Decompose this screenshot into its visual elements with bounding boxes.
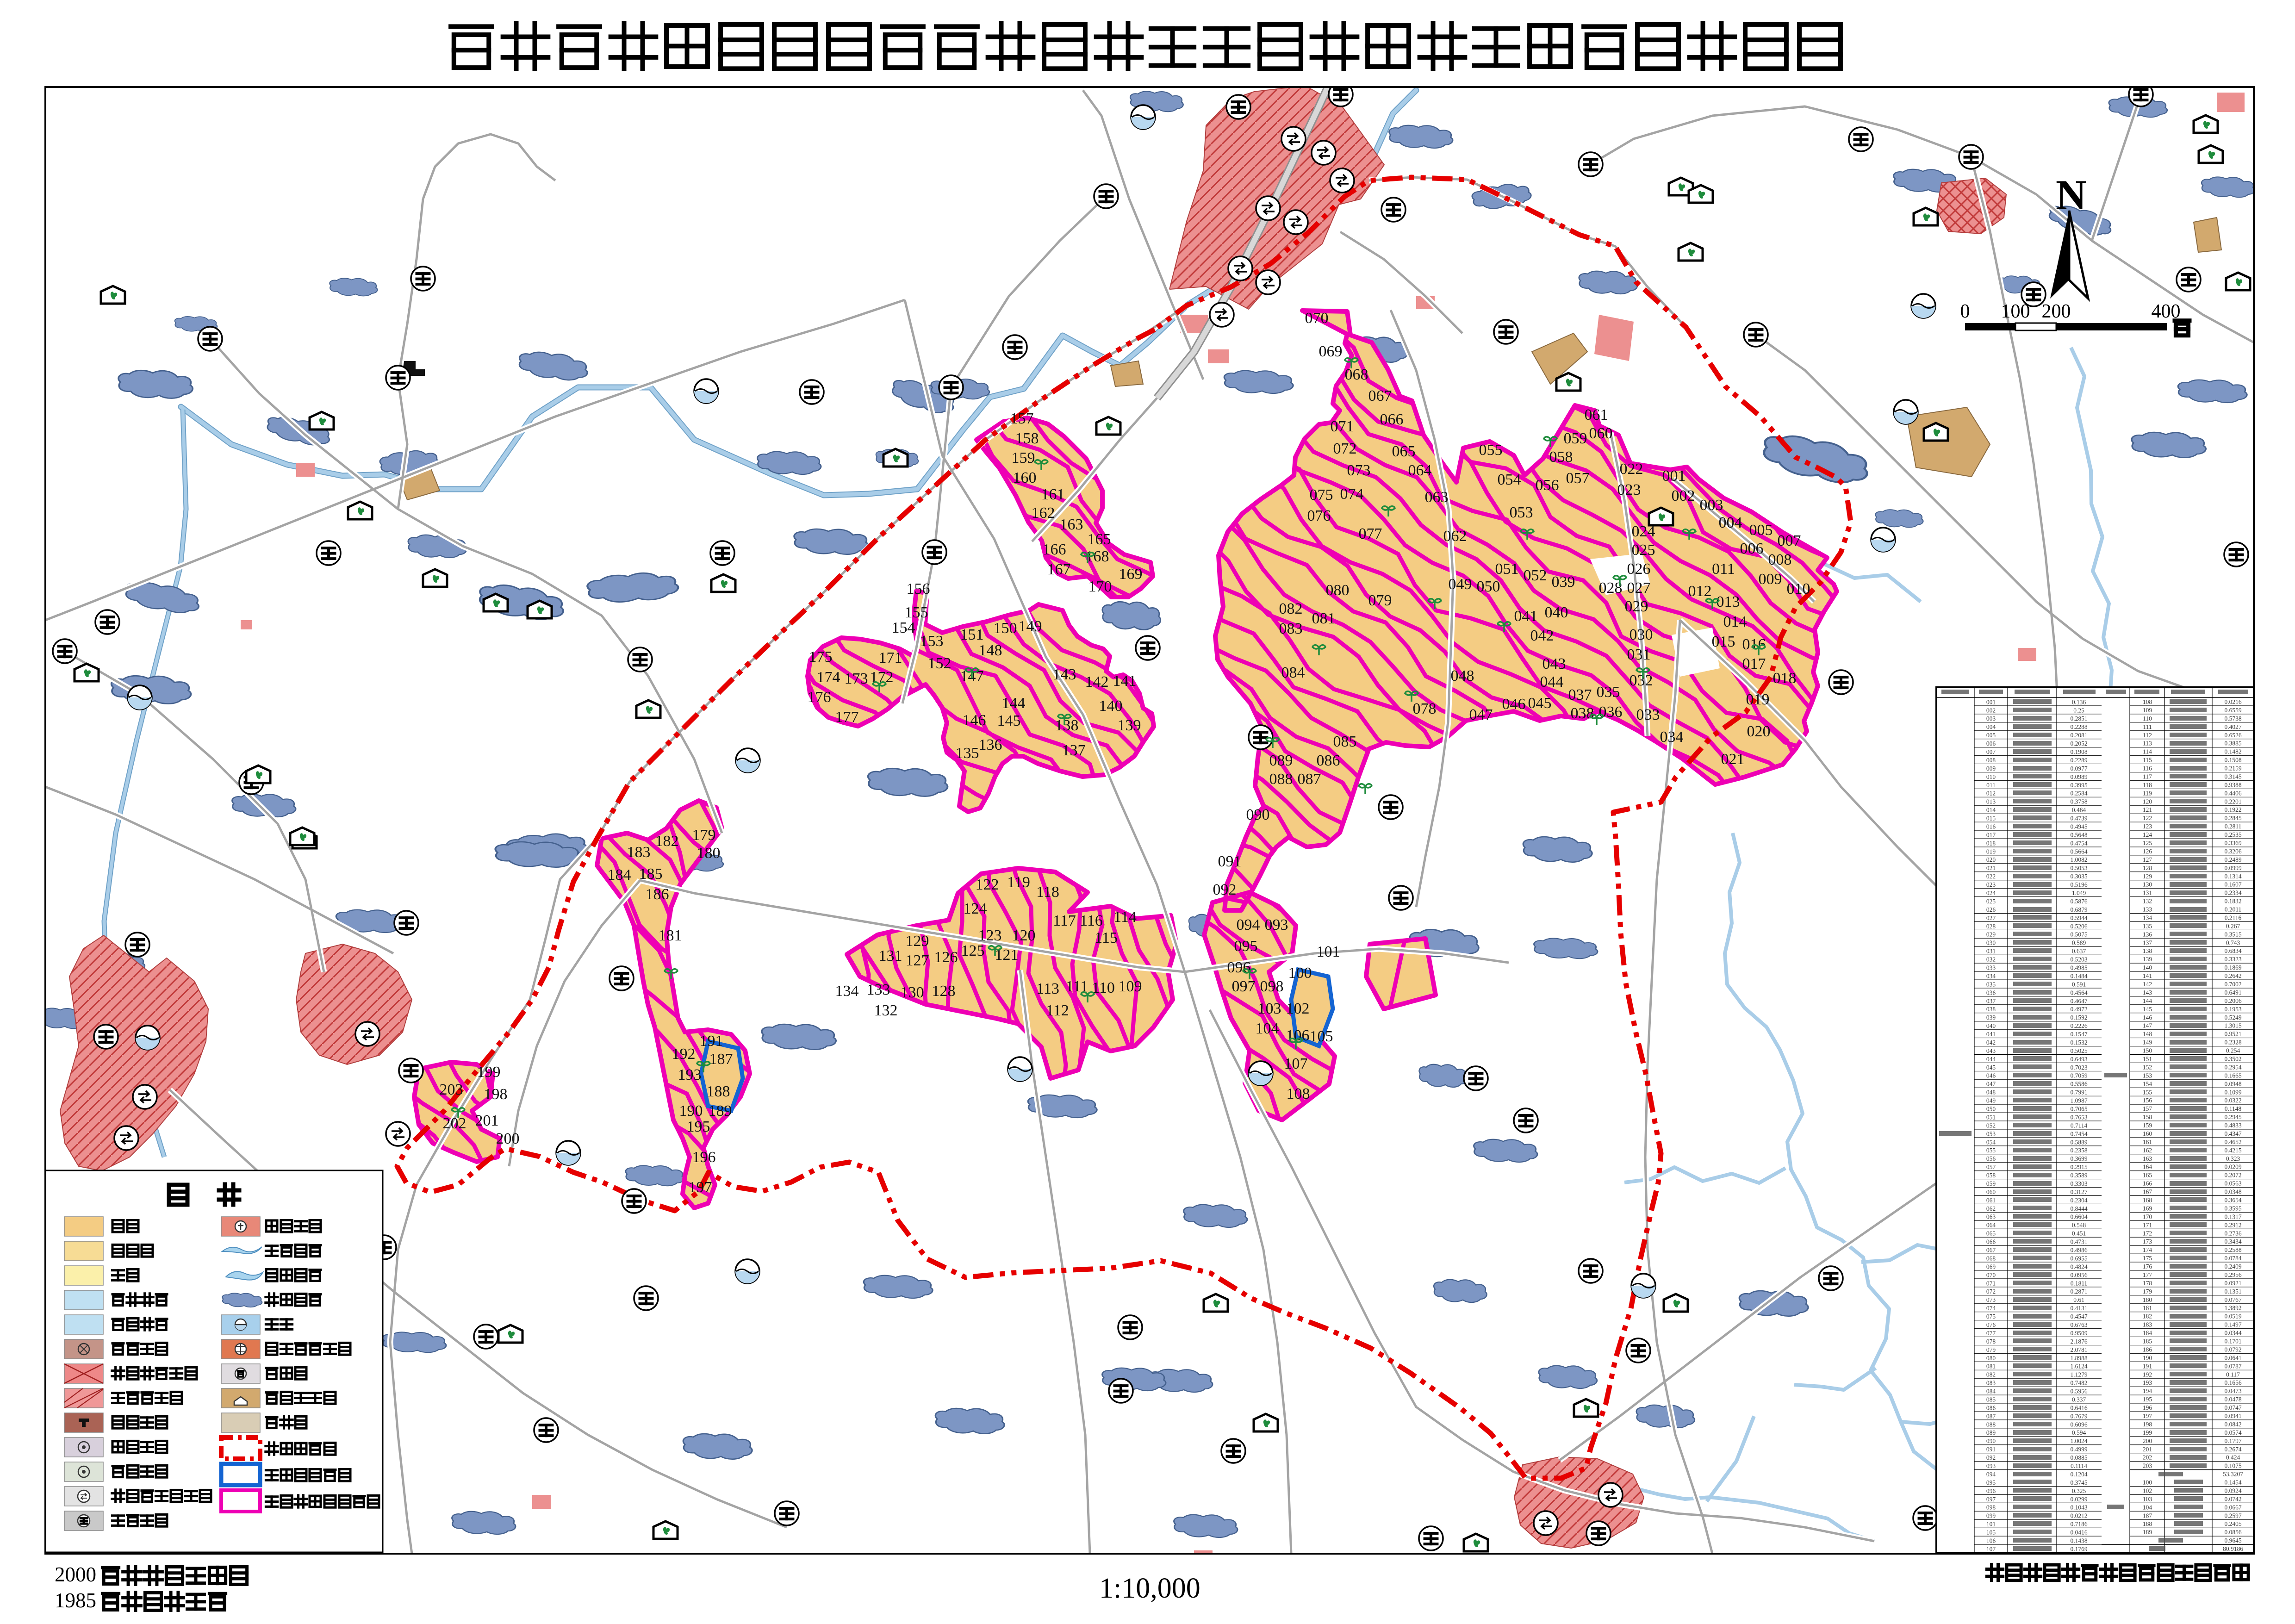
svg-text:040: 040 bbox=[1545, 604, 1568, 621]
svg-text:183: 183 bbox=[2143, 1321, 2152, 1328]
svg-text:156: 156 bbox=[2143, 1097, 2152, 1104]
svg-text:075: 075 bbox=[1986, 1313, 1996, 1320]
svg-text:0.0956: 0.0956 bbox=[2070, 1271, 2087, 1278]
svg-text:097: 097 bbox=[1232, 978, 1256, 995]
svg-text:0.3885: 0.3885 bbox=[2224, 740, 2241, 747]
svg-text:181: 181 bbox=[659, 927, 682, 944]
svg-text:0.5249: 0.5249 bbox=[2224, 1014, 2241, 1021]
svg-text:018: 018 bbox=[1986, 840, 1996, 846]
svg-text:0.0212: 0.0212 bbox=[2070, 1512, 2087, 1519]
svg-text:111: 111 bbox=[2143, 723, 2152, 730]
svg-text:065: 065 bbox=[1392, 443, 1416, 460]
svg-text:0.6559: 0.6559 bbox=[2224, 707, 2241, 714]
svg-text:044: 044 bbox=[1540, 673, 1564, 691]
svg-text:0.6526: 0.6526 bbox=[2224, 732, 2241, 739]
svg-text:0.7023: 0.7023 bbox=[2070, 1064, 2087, 1071]
svg-text:011: 011 bbox=[1712, 560, 1735, 578]
svg-text:143: 143 bbox=[1053, 666, 1076, 683]
svg-text:176: 176 bbox=[808, 689, 831, 706]
svg-text:128: 128 bbox=[2143, 865, 2152, 871]
svg-text:153: 153 bbox=[2143, 1072, 2152, 1079]
svg-text:167: 167 bbox=[2143, 1188, 2152, 1195]
svg-text:116: 116 bbox=[1080, 912, 1103, 929]
svg-text:0.7482: 0.7482 bbox=[2070, 1380, 2087, 1387]
svg-text:146: 146 bbox=[963, 712, 986, 729]
svg-text:109: 109 bbox=[2143, 707, 2152, 714]
svg-text:040: 040 bbox=[1986, 1022, 1996, 1029]
svg-text:0.0977: 0.0977 bbox=[2070, 765, 2087, 772]
svg-text:063: 063 bbox=[1425, 489, 1449, 506]
svg-text:010: 010 bbox=[1986, 773, 1996, 780]
svg-text:125: 125 bbox=[961, 942, 985, 959]
svg-text:046: 046 bbox=[1502, 696, 1526, 713]
svg-text:187: 187 bbox=[2143, 1512, 2152, 1519]
svg-text:0.1811: 0.1811 bbox=[2071, 1280, 2088, 1287]
svg-text:182: 182 bbox=[2143, 1313, 2152, 1320]
svg-text:0.0921: 0.0921 bbox=[2224, 1280, 2241, 1287]
svg-text:034: 034 bbox=[1660, 728, 1684, 746]
svg-text:045: 045 bbox=[1986, 1064, 1996, 1071]
svg-text:064: 064 bbox=[1408, 462, 1432, 479]
svg-text:164: 164 bbox=[2143, 1164, 2152, 1170]
svg-text:0.1922: 0.1922 bbox=[2224, 806, 2241, 813]
svg-text:0.0856: 0.0856 bbox=[2224, 1529, 2241, 1536]
svg-text:033: 033 bbox=[1986, 964, 1996, 971]
svg-text:199: 199 bbox=[2143, 1429, 2152, 1436]
svg-text:157: 157 bbox=[2143, 1105, 2152, 1112]
svg-text:004: 004 bbox=[1719, 514, 1742, 531]
svg-text:122: 122 bbox=[2143, 815, 2152, 821]
svg-text:092: 092 bbox=[1986, 1454, 1996, 1461]
svg-text:166: 166 bbox=[2143, 1180, 2152, 1187]
svg-text:80.9186: 80.9186 bbox=[2223, 1545, 2243, 1552]
svg-text:051: 051 bbox=[1986, 1114, 1996, 1120]
svg-text:064: 064 bbox=[1986, 1222, 1996, 1229]
svg-text:0.4406: 0.4406 bbox=[2224, 790, 2241, 796]
svg-text:136: 136 bbox=[979, 736, 1002, 753]
svg-text:169: 169 bbox=[1119, 566, 1143, 583]
svg-text:0.1547: 0.1547 bbox=[2070, 1031, 2087, 1038]
svg-text:190: 190 bbox=[679, 1102, 703, 1120]
svg-text:134: 134 bbox=[2143, 915, 2152, 921]
svg-text:095: 095 bbox=[1986, 1479, 1996, 1486]
svg-text:127: 127 bbox=[906, 952, 929, 969]
svg-text:0.0322: 0.0322 bbox=[2224, 1097, 2241, 1104]
svg-text:0: 0 bbox=[1960, 301, 1970, 322]
svg-text:0.2915: 0.2915 bbox=[2070, 1164, 2087, 1170]
svg-text:203: 203 bbox=[440, 1081, 463, 1098]
svg-text:055: 055 bbox=[1986, 1147, 1996, 1154]
svg-text:0.2226: 0.2226 bbox=[2070, 1022, 2087, 1029]
svg-text:029: 029 bbox=[1625, 598, 1648, 615]
svg-text:172: 172 bbox=[2143, 1230, 2152, 1237]
svg-text:077: 077 bbox=[1359, 525, 1382, 542]
svg-text:0.1114: 0.1114 bbox=[2071, 1462, 2087, 1469]
svg-text:184: 184 bbox=[2143, 1330, 2152, 1337]
svg-text:175: 175 bbox=[809, 648, 833, 666]
svg-text:0.7991: 0.7991 bbox=[2070, 1089, 2087, 1096]
svg-text:001: 001 bbox=[1662, 467, 1686, 485]
svg-text:011: 011 bbox=[1986, 782, 1996, 789]
svg-text:082: 082 bbox=[1279, 600, 1303, 617]
svg-text:178: 178 bbox=[2143, 1280, 2152, 1287]
svg-text:075: 075 bbox=[1310, 486, 1333, 504]
svg-text:0.2052: 0.2052 bbox=[2070, 740, 2087, 747]
svg-text:004: 004 bbox=[1986, 723, 1996, 730]
svg-text:092: 092 bbox=[1213, 881, 1237, 898]
svg-text:0.3323: 0.3323 bbox=[2224, 956, 2241, 963]
svg-text:0.424: 0.424 bbox=[2226, 1454, 2240, 1461]
svg-text:107: 107 bbox=[1284, 1055, 1308, 1072]
svg-text:1:10,000: 1:10,000 bbox=[1099, 1573, 1200, 1604]
svg-text:0.9521: 0.9521 bbox=[2224, 1031, 2241, 1038]
svg-text:006: 006 bbox=[1986, 740, 1996, 747]
svg-text:050: 050 bbox=[1477, 578, 1500, 595]
svg-text:141: 141 bbox=[2143, 972, 2152, 979]
svg-text:015: 015 bbox=[1986, 815, 1996, 822]
svg-text:165: 165 bbox=[2143, 1172, 2152, 1179]
svg-text:045: 045 bbox=[1528, 695, 1552, 712]
svg-text:139: 139 bbox=[2143, 956, 2152, 963]
svg-text:077: 077 bbox=[1986, 1330, 1996, 1337]
svg-text:060: 060 bbox=[1986, 1188, 1996, 1195]
svg-text:0.1665: 0.1665 bbox=[2224, 1072, 2241, 1079]
svg-text:109: 109 bbox=[1119, 978, 1142, 995]
svg-text:148: 148 bbox=[2143, 1031, 2152, 1038]
svg-text:0.0941: 0.0941 bbox=[2224, 1412, 2241, 1419]
svg-text:100: 100 bbox=[1288, 964, 1312, 982]
svg-text:0.3145: 0.3145 bbox=[2224, 773, 2241, 780]
svg-text:093: 093 bbox=[1986, 1462, 1996, 1469]
svg-text:0.3699: 0.3699 bbox=[2070, 1155, 2087, 1162]
svg-text:0.0641: 0.0641 bbox=[2224, 1354, 2241, 1361]
svg-text:1985: 1985 bbox=[55, 1589, 96, 1612]
svg-text:0.3502: 0.3502 bbox=[2224, 1056, 2241, 1063]
svg-text:026: 026 bbox=[1627, 560, 1651, 578]
svg-text:0.2845: 0.2845 bbox=[2224, 815, 2241, 821]
svg-text:126: 126 bbox=[934, 949, 958, 966]
svg-text:0.0989: 0.0989 bbox=[2070, 773, 2087, 780]
svg-text:023: 023 bbox=[1986, 881, 1996, 888]
svg-text:100: 100 bbox=[2143, 1479, 2152, 1486]
svg-text:044: 044 bbox=[1986, 1056, 1996, 1063]
svg-text:145: 145 bbox=[997, 712, 1021, 729]
svg-text:0.3654: 0.3654 bbox=[2224, 1197, 2241, 1204]
svg-text:020: 020 bbox=[1986, 856, 1996, 863]
svg-text:073: 073 bbox=[1347, 462, 1371, 479]
svg-text:195: 195 bbox=[687, 1118, 710, 1135]
svg-text:041: 041 bbox=[1514, 608, 1538, 625]
svg-text:0.5203: 0.5203 bbox=[2070, 956, 2087, 963]
svg-text:0.4945: 0.4945 bbox=[2070, 823, 2087, 830]
svg-text:186: 186 bbox=[646, 886, 669, 903]
svg-text:177: 177 bbox=[2143, 1271, 2152, 1278]
svg-text:0.7002: 0.7002 bbox=[2224, 981, 2241, 988]
svg-text:160: 160 bbox=[1013, 469, 1037, 486]
svg-text:53.3207: 53.3207 bbox=[2223, 1471, 2243, 1478]
svg-text:201: 201 bbox=[475, 1112, 499, 1129]
svg-text:0.1148: 0.1148 bbox=[2225, 1105, 2242, 1112]
svg-text:0.0667: 0.0667 bbox=[2224, 1504, 2241, 1511]
svg-text:0.1314: 0.1314 bbox=[2224, 873, 2241, 880]
svg-text:194: 194 bbox=[2143, 1388, 2152, 1394]
svg-text:089: 089 bbox=[1986, 1429, 1996, 1436]
svg-text:100: 100 bbox=[2001, 301, 2030, 322]
svg-text:165: 165 bbox=[1088, 531, 1111, 548]
svg-text:120: 120 bbox=[2143, 798, 2152, 805]
svg-text:157: 157 bbox=[1010, 410, 1034, 427]
svg-text:0.1204: 0.1204 bbox=[2070, 1471, 2087, 1478]
svg-text:123: 123 bbox=[2143, 823, 2152, 830]
svg-text:108: 108 bbox=[1287, 1085, 1310, 1102]
svg-text:151: 151 bbox=[2143, 1056, 2152, 1063]
svg-text:154: 154 bbox=[2143, 1080, 2152, 1087]
svg-text:0.2159: 0.2159 bbox=[2224, 765, 2241, 772]
svg-text:192: 192 bbox=[672, 1045, 696, 1063]
svg-text:030: 030 bbox=[1630, 626, 1653, 643]
svg-text:103: 103 bbox=[1258, 1000, 1281, 1017]
svg-text:0.3434: 0.3434 bbox=[2224, 1238, 2241, 1245]
svg-text:0.5025: 0.5025 bbox=[2070, 1047, 2087, 1054]
svg-text:0.7454: 0.7454 bbox=[2070, 1130, 2087, 1137]
svg-text:171: 171 bbox=[2143, 1221, 2152, 1228]
svg-text:090: 090 bbox=[1986, 1437, 1996, 1444]
svg-text:068: 068 bbox=[1345, 366, 1368, 383]
svg-text:053: 053 bbox=[1510, 504, 1533, 521]
svg-text:103: 103 bbox=[2143, 1495, 2152, 1502]
svg-text:038: 038 bbox=[1986, 1006, 1996, 1013]
svg-text:0.2289: 0.2289 bbox=[2070, 757, 2087, 764]
svg-text:0.4564: 0.4564 bbox=[2070, 989, 2087, 996]
svg-text:005: 005 bbox=[1986, 732, 1996, 739]
svg-text:0.1832: 0.1832 bbox=[2224, 898, 2241, 905]
svg-text:202: 202 bbox=[2143, 1454, 2152, 1461]
svg-text:179: 179 bbox=[2143, 1288, 2152, 1295]
svg-text:201: 201 bbox=[2143, 1446, 2152, 1453]
svg-text:0.6604: 0.6604 bbox=[2070, 1213, 2087, 1220]
svg-text:0.9509: 0.9509 bbox=[2070, 1330, 2087, 1337]
svg-text:0.117: 0.117 bbox=[2226, 1371, 2240, 1378]
svg-text:131: 131 bbox=[879, 947, 902, 964]
svg-text:084: 084 bbox=[1986, 1388, 1996, 1395]
svg-text:160: 160 bbox=[2143, 1130, 2152, 1137]
svg-text:173: 173 bbox=[2143, 1238, 2152, 1245]
svg-text:0.1482: 0.1482 bbox=[2224, 748, 2241, 755]
svg-text:0.0344: 0.0344 bbox=[2224, 1330, 2241, 1337]
svg-text:2.1876: 2.1876 bbox=[2070, 1338, 2087, 1345]
svg-text:152: 152 bbox=[928, 655, 952, 672]
svg-text:050: 050 bbox=[1986, 1106, 1996, 1113]
svg-text:0.4986: 0.4986 bbox=[2070, 1247, 2087, 1254]
svg-text:0.9645: 0.9645 bbox=[2224, 1537, 2241, 1544]
svg-text:032: 032 bbox=[1630, 672, 1653, 689]
svg-text:184: 184 bbox=[608, 866, 631, 884]
svg-text:129: 129 bbox=[906, 933, 929, 950]
svg-text:017: 017 bbox=[1986, 831, 1996, 838]
svg-text:129: 129 bbox=[2143, 873, 2152, 880]
svg-text:001: 001 bbox=[1986, 698, 1996, 705]
svg-text:034: 034 bbox=[1986, 972, 1996, 979]
svg-text:088: 088 bbox=[1269, 771, 1293, 788]
svg-text:060: 060 bbox=[1589, 425, 1613, 442]
svg-text:039: 039 bbox=[1986, 1014, 1996, 1021]
svg-text:0.3595: 0.3595 bbox=[2224, 1205, 2241, 1212]
svg-text:0.3369: 0.3369 bbox=[2224, 840, 2241, 846]
svg-text:110: 110 bbox=[1092, 979, 1115, 996]
svg-text:193: 193 bbox=[678, 1066, 702, 1083]
svg-text:048: 048 bbox=[1451, 667, 1474, 684]
svg-text:0.6096: 0.6096 bbox=[2070, 1421, 2087, 1428]
svg-text:104: 104 bbox=[1256, 1020, 1279, 1037]
svg-text:078: 078 bbox=[1413, 700, 1437, 717]
svg-text:0.2945: 0.2945 bbox=[2224, 1114, 2241, 1120]
svg-text:0.1438: 0.1438 bbox=[2070, 1537, 2087, 1544]
svg-text:0.591: 0.591 bbox=[2072, 981, 2086, 988]
svg-text:0.7186: 0.7186 bbox=[2070, 1521, 2087, 1528]
svg-text:071: 071 bbox=[1331, 418, 1354, 435]
svg-text:119: 119 bbox=[1007, 874, 1030, 891]
svg-text:0.0842: 0.0842 bbox=[2224, 1421, 2241, 1428]
svg-text:091: 091 bbox=[1986, 1446, 1996, 1453]
svg-text:189: 189 bbox=[709, 1102, 732, 1120]
svg-text:013: 013 bbox=[1717, 593, 1740, 610]
svg-text:0.7059: 0.7059 bbox=[2070, 1072, 2087, 1079]
svg-text:159: 159 bbox=[2143, 1122, 2152, 1129]
svg-text:042: 042 bbox=[1530, 627, 1554, 644]
svg-text:128: 128 bbox=[932, 983, 956, 1000]
svg-text:0.4131: 0.4131 bbox=[2070, 1305, 2087, 1312]
svg-text:0.4972: 0.4972 bbox=[2070, 1006, 2087, 1013]
svg-text:112: 112 bbox=[1046, 1002, 1069, 1019]
svg-text:193: 193 bbox=[2143, 1379, 2152, 1386]
svg-text:0.2954: 0.2954 bbox=[2224, 1064, 2241, 1070]
svg-text:0.5053: 0.5053 bbox=[2070, 865, 2087, 871]
svg-text:117: 117 bbox=[2143, 773, 2152, 780]
svg-text:068: 068 bbox=[1986, 1255, 1996, 1262]
svg-text:022: 022 bbox=[1620, 460, 1643, 478]
svg-text:083: 083 bbox=[1986, 1380, 1996, 1387]
svg-text:119: 119 bbox=[2143, 790, 2152, 796]
svg-text:057: 057 bbox=[1566, 470, 1590, 487]
svg-text:176: 176 bbox=[2143, 1263, 2152, 1270]
svg-text:203: 203 bbox=[2143, 1462, 2152, 1469]
svg-text:105: 105 bbox=[1310, 1028, 1333, 1045]
svg-text:0.0574: 0.0574 bbox=[2224, 1429, 2241, 1436]
svg-text:0.136: 0.136 bbox=[2072, 698, 2086, 705]
svg-text:200: 200 bbox=[2143, 1437, 2152, 1444]
svg-text:138: 138 bbox=[1055, 717, 1079, 734]
svg-text:200: 200 bbox=[2042, 301, 2071, 322]
svg-text:0.4754: 0.4754 bbox=[2070, 840, 2087, 846]
svg-text:N: N bbox=[2056, 171, 2086, 218]
svg-text:037: 037 bbox=[1568, 686, 1592, 703]
svg-text:197: 197 bbox=[689, 1179, 712, 1196]
svg-text:198: 198 bbox=[2143, 1421, 2152, 1428]
svg-text:0.7114: 0.7114 bbox=[2071, 1122, 2088, 1129]
svg-text:0.2489: 0.2489 bbox=[2224, 856, 2241, 863]
svg-text:014: 014 bbox=[1723, 613, 1747, 630]
svg-text:124: 124 bbox=[964, 900, 987, 917]
svg-text:0.4824: 0.4824 bbox=[2070, 1263, 2087, 1270]
svg-text:031: 031 bbox=[1627, 646, 1651, 663]
svg-text:0.5664: 0.5664 bbox=[2070, 848, 2087, 855]
svg-text:188: 188 bbox=[707, 1083, 730, 1100]
svg-text:0.3206: 0.3206 bbox=[2224, 848, 2241, 855]
svg-text:0.7653: 0.7653 bbox=[2070, 1114, 2087, 1120]
svg-text:154: 154 bbox=[892, 619, 915, 636]
svg-text:0.5738: 0.5738 bbox=[2224, 715, 2241, 722]
svg-text:0.2405: 0.2405 bbox=[2224, 1520, 2241, 1527]
svg-text:0.3303: 0.3303 bbox=[2070, 1180, 2087, 1187]
svg-text:0.2811: 0.2811 bbox=[2225, 823, 2242, 830]
svg-text:025: 025 bbox=[1632, 541, 1655, 559]
svg-text:056: 056 bbox=[1536, 477, 1559, 494]
svg-text:0.254: 0.254 bbox=[2226, 1047, 2240, 1054]
svg-text:142: 142 bbox=[1085, 673, 1109, 691]
svg-text:189: 189 bbox=[2143, 1529, 2152, 1536]
svg-text:032: 032 bbox=[1986, 956, 1996, 963]
svg-text:114: 114 bbox=[1113, 908, 1137, 926]
svg-text:195: 195 bbox=[2143, 1396, 2152, 1403]
svg-text:130: 130 bbox=[901, 984, 924, 1001]
svg-text:0.2358: 0.2358 bbox=[2070, 1147, 2087, 1154]
svg-text:081: 081 bbox=[1986, 1363, 1996, 1370]
svg-text:086: 086 bbox=[1317, 752, 1340, 769]
svg-text:0.6763: 0.6763 bbox=[2070, 1321, 2087, 1328]
svg-text:101: 101 bbox=[1986, 1521, 1996, 1528]
svg-text:0.2851: 0.2851 bbox=[2070, 715, 2087, 722]
svg-text:0.0787: 0.0787 bbox=[2224, 1363, 2241, 1369]
svg-text:008: 008 bbox=[1768, 551, 1792, 568]
svg-text:0.2588: 0.2588 bbox=[2224, 1246, 2241, 1253]
svg-text:028: 028 bbox=[1599, 579, 1623, 597]
svg-text:113: 113 bbox=[2143, 740, 2152, 747]
svg-text:0.1869: 0.1869 bbox=[2224, 964, 2241, 971]
svg-text:0.2871: 0.2871 bbox=[2070, 1288, 2087, 1295]
svg-text:0.7065: 0.7065 bbox=[2070, 1106, 2087, 1113]
svg-text:0.0209: 0.0209 bbox=[2224, 1164, 2241, 1170]
svg-text:182: 182 bbox=[655, 833, 679, 850]
svg-text:0.2642: 0.2642 bbox=[2224, 972, 2241, 979]
svg-text:042: 042 bbox=[1986, 1039, 1996, 1046]
svg-text:0.7679: 0.7679 bbox=[2070, 1412, 2087, 1419]
svg-text:151: 151 bbox=[960, 626, 984, 643]
svg-text:094: 094 bbox=[1986, 1471, 1996, 1478]
svg-text:0.0742: 0.0742 bbox=[2224, 1495, 2241, 1502]
svg-text:018: 018 bbox=[1773, 670, 1797, 687]
svg-text:007: 007 bbox=[1986, 748, 1996, 755]
svg-text:0.25: 0.25 bbox=[2073, 707, 2084, 714]
svg-text:0.0792: 0.0792 bbox=[2224, 1346, 2241, 1353]
svg-text:093: 093 bbox=[1265, 916, 1288, 933]
svg-text:196: 196 bbox=[692, 1149, 716, 1166]
svg-text:122: 122 bbox=[976, 876, 999, 893]
svg-text:082: 082 bbox=[1986, 1371, 1996, 1378]
svg-text:074: 074 bbox=[1986, 1305, 1996, 1312]
svg-text:061: 061 bbox=[1585, 406, 1608, 423]
svg-text:021: 021 bbox=[1986, 865, 1996, 871]
svg-text:1.3892: 1.3892 bbox=[2224, 1305, 2241, 1312]
svg-text:014: 014 bbox=[1986, 807, 1996, 814]
svg-text:036: 036 bbox=[1986, 989, 1996, 996]
svg-text:0.6493: 0.6493 bbox=[2070, 1056, 2087, 1063]
svg-text:054: 054 bbox=[1986, 1139, 1996, 1145]
svg-text:0.451: 0.451 bbox=[2072, 1230, 2086, 1237]
svg-text:003: 003 bbox=[1986, 715, 1996, 722]
svg-text:046: 046 bbox=[1986, 1072, 1996, 1079]
svg-text:035: 035 bbox=[1597, 684, 1620, 701]
svg-text:049: 049 bbox=[1986, 1097, 1996, 1104]
